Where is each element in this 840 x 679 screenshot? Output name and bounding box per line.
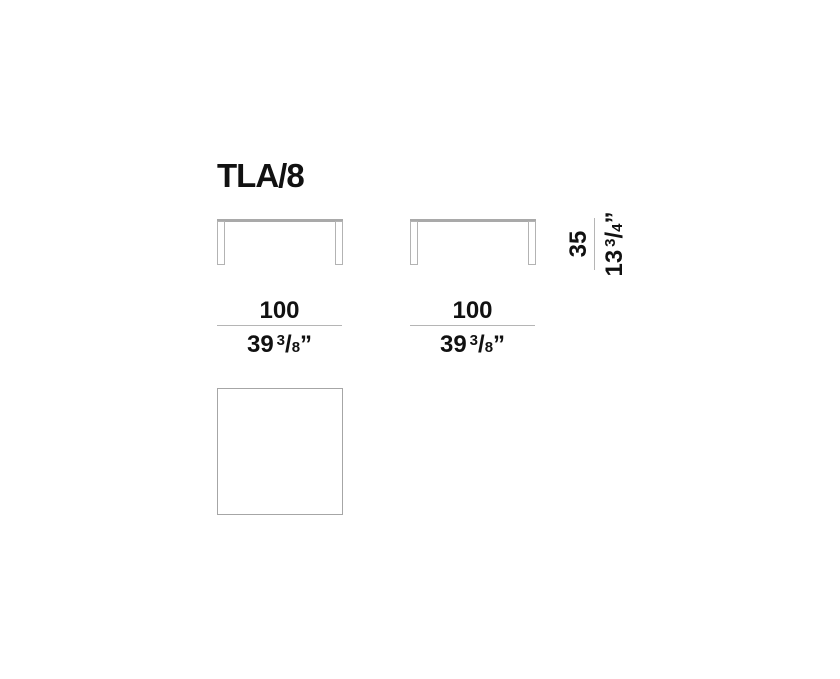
imperial-fraction-slash: / xyxy=(285,331,292,358)
imperial-fraction-numerator: 3 xyxy=(470,332,478,349)
dimension-divider-line xyxy=(594,218,595,270)
spec-drawing-canvas: TLA/8 35 133/4” 100 393/8” 100 393/8” xyxy=(0,0,840,679)
width-dimension-left: 100 393/8” xyxy=(217,300,342,361)
imperial-fraction-denominator: 8 xyxy=(485,339,493,356)
imperial-whole: 39 xyxy=(440,331,467,358)
height-dimension: 35 133/4” xyxy=(566,194,632,294)
imperial-fraction-denominator: 4 xyxy=(609,223,626,231)
table-leg-left xyxy=(410,221,418,265)
imperial-fraction-slash: / xyxy=(478,331,485,358)
imperial-unit-mark: ” xyxy=(601,211,628,223)
imperial-fraction-numerator: 3 xyxy=(602,238,619,246)
front-view-drawing-left xyxy=(217,219,343,265)
table-leg-right xyxy=(528,221,536,265)
imperial-fraction-slash: / xyxy=(601,232,628,239)
front-view-drawing-right xyxy=(410,219,536,265)
dimension-divider-line xyxy=(217,325,342,326)
height-imperial-value: 133/4” xyxy=(597,211,632,276)
top-view-square xyxy=(217,388,343,515)
width-metric-value: 100 xyxy=(410,300,535,322)
tabletop-profile xyxy=(410,219,536,222)
imperial-unit-mark: ” xyxy=(300,331,312,358)
table-leg-right xyxy=(335,221,343,265)
imperial-fraction-denominator: 8 xyxy=(292,339,300,356)
imperial-whole: 39 xyxy=(247,331,274,358)
imperial-fraction-numerator: 3 xyxy=(277,332,285,349)
table-leg-left xyxy=(217,221,225,265)
width-imperial-value: 393/8” xyxy=(410,328,535,361)
imperial-whole: 13 xyxy=(601,250,628,277)
width-dimension-right: 100 393/8” xyxy=(410,300,535,361)
dimension-divider-line xyxy=(410,325,535,326)
height-metric-value: 35 xyxy=(566,231,592,258)
product-title: TLA/8 xyxy=(217,159,304,192)
width-imperial-value: 393/8” xyxy=(217,328,342,361)
imperial-unit-mark: ” xyxy=(493,331,505,358)
tabletop-profile xyxy=(217,219,343,222)
width-metric-value: 100 xyxy=(217,300,342,322)
